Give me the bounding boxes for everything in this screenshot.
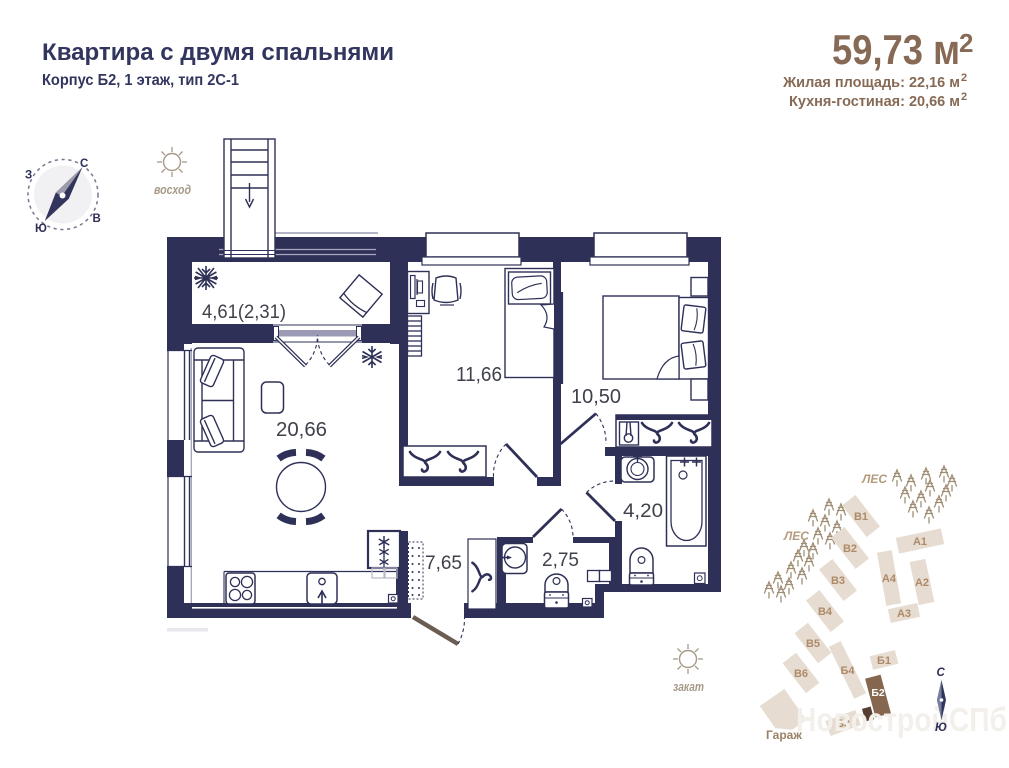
svg-text:7,65: 7,65 xyxy=(425,553,462,574)
svg-text:закат: закат xyxy=(673,680,704,694)
svg-text:Б2: Б2 xyxy=(871,687,885,699)
svg-text:восход: восход xyxy=(154,183,191,197)
svg-text:59,73 м: 59,73 м xyxy=(832,26,960,73)
svg-text:ЛЕС: ЛЕС xyxy=(861,472,887,486)
svg-text:2,75: 2,75 xyxy=(542,550,579,571)
svg-text:В2: В2 xyxy=(843,543,857,555)
svg-text:2: 2 xyxy=(961,91,967,103)
svg-text:2: 2 xyxy=(961,72,967,84)
svg-text:С: С xyxy=(937,667,946,679)
svg-text:А2: А2 xyxy=(915,577,929,589)
svg-text:С: С xyxy=(80,158,88,170)
svg-text:10,50: 10,50 xyxy=(571,386,621,408)
svg-text:А3: А3 xyxy=(897,608,911,620)
svg-text:11,66: 11,66 xyxy=(456,364,502,386)
svg-text:Кухня-гостиная: 20,66 м: Кухня-гостиная: 20,66 м xyxy=(789,94,960,110)
svg-text:Квартира с двумя спальнями: Квартира с двумя спальнями xyxy=(42,39,394,66)
svg-text:В5: В5 xyxy=(806,638,820,650)
svg-text:А1: А1 xyxy=(913,536,927,548)
svg-text:НовостройСПб: НовостройСПб xyxy=(796,701,1007,738)
svg-text:А4: А4 xyxy=(882,573,897,586)
svg-text:В3: В3 xyxy=(831,575,845,587)
svg-text:Жилая площадь: 22,16 м: Жилая площадь: 22,16 м xyxy=(782,75,960,91)
svg-text:ЛЕС: ЛЕС xyxy=(783,529,809,543)
svg-text:В: В xyxy=(93,213,101,225)
svg-text:Ю: Ю xyxy=(935,722,947,734)
svg-text:В4: В4 xyxy=(818,606,833,618)
svg-text:Корпус Б2, 1 этаж, тип 2С-1: Корпус Б2, 1 этаж, тип 2С-1 xyxy=(42,72,239,89)
svg-text:4,61(2,31): 4,61(2,31) xyxy=(202,301,286,323)
svg-text:4,20: 4,20 xyxy=(623,501,663,522)
svg-text:В6: В6 xyxy=(794,668,808,680)
svg-text:Ю: Ю xyxy=(35,223,47,235)
svg-text:З: З xyxy=(25,170,32,182)
svg-text:В1: В1 xyxy=(854,511,868,523)
svg-text:Б1: Б1 xyxy=(877,655,891,667)
svg-text:Б4: Б4 xyxy=(840,665,855,677)
svg-text:2: 2 xyxy=(959,28,973,58)
svg-text:20,66: 20,66 xyxy=(276,419,327,441)
